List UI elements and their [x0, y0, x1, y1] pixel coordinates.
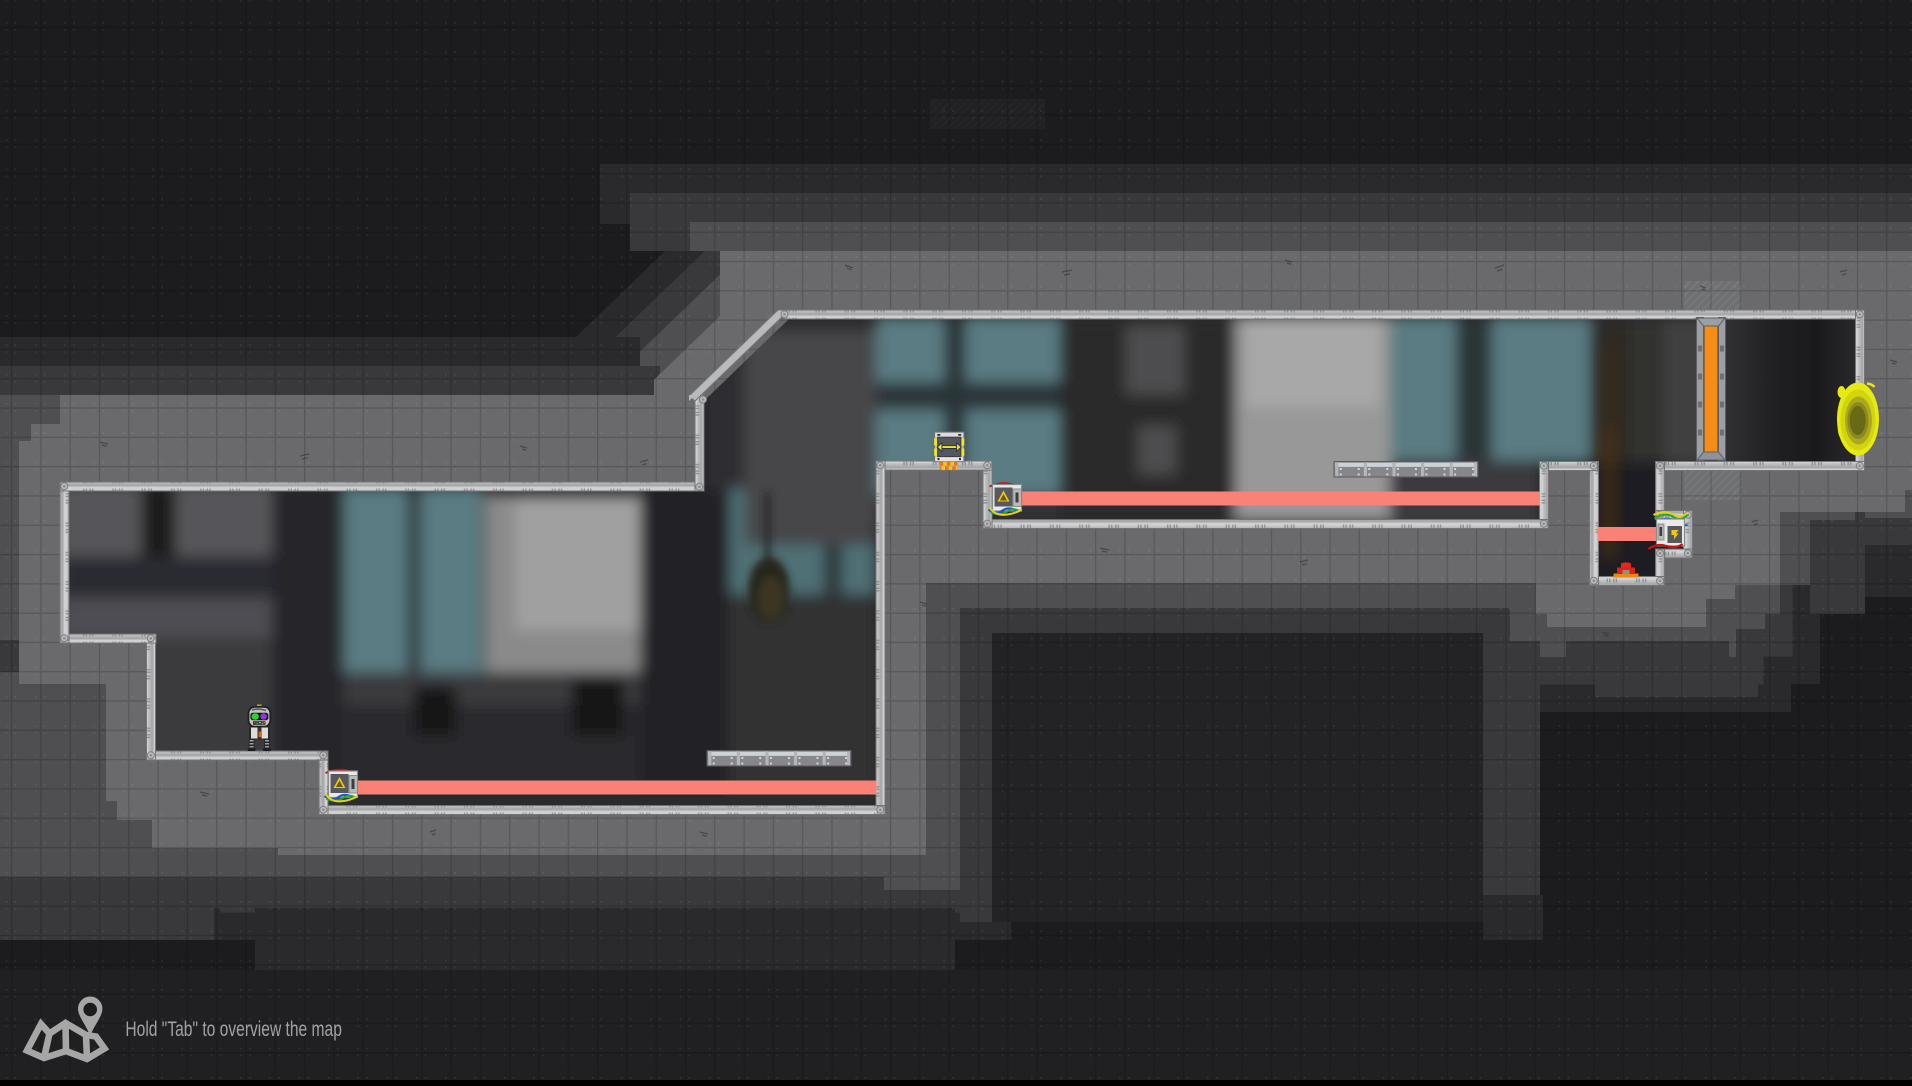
svg-text:Hold "Tab" to overview the map: Hold "Tab" to overview the map: [125, 1017, 342, 1041]
